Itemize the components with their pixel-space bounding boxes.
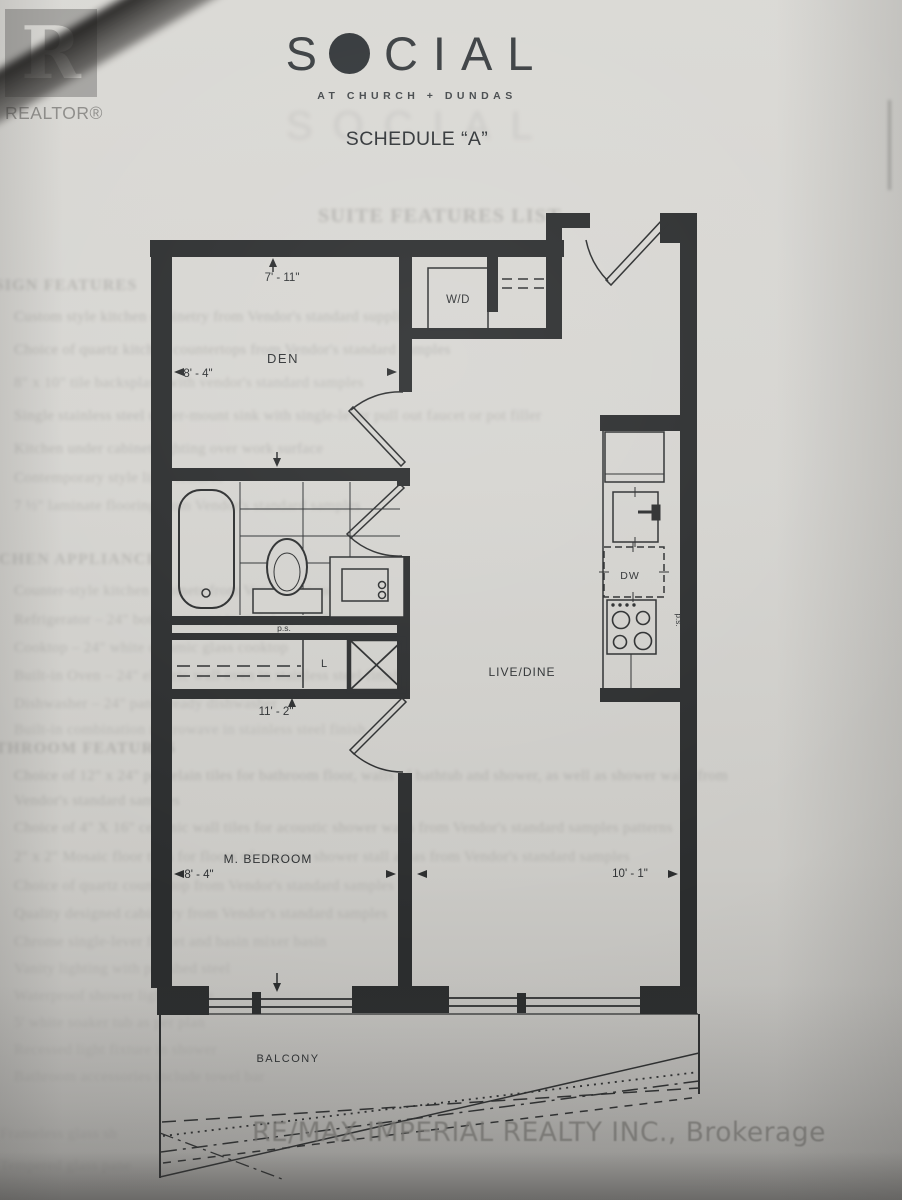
brand-tagline: AT CHURCH + DUNDAS xyxy=(286,90,548,102)
balcony-outline xyxy=(160,1014,699,1179)
dimension-hall-width: 11' - 2" xyxy=(259,706,294,718)
kitchen-sink xyxy=(613,487,660,547)
room-label-wd: W/D xyxy=(446,294,470,306)
schedule-title: SCHEDULE “A” xyxy=(286,128,548,151)
stove xyxy=(607,600,656,654)
linen-closet xyxy=(177,640,303,688)
label-ps-bath: p.s. xyxy=(277,623,291,633)
fridge xyxy=(605,432,664,482)
plan-labels: 7' - 11" DEN 8' - 4" W/D p.s. L 11' - 2"… xyxy=(183,272,683,1065)
bedroom-door xyxy=(350,698,406,772)
dimension-den-height: 7' - 11" xyxy=(265,272,300,284)
entry-door xyxy=(586,219,668,285)
social-o-dot-icon xyxy=(329,33,370,74)
label-dishwasher: DW xyxy=(620,570,640,582)
floorplan-drawing: 7' - 11" DEN 8' - 4" W/D p.s. L 11' - 2"… xyxy=(0,0,902,1200)
bathroom-door xyxy=(347,484,404,556)
vanity-sink xyxy=(330,557,404,617)
dimension-living-width: 10' - 1" xyxy=(612,868,648,880)
social-logo-letter-s: S xyxy=(286,26,317,81)
room-label-bedroom: M. BEDROOM xyxy=(224,852,313,866)
bathtub xyxy=(179,490,234,608)
shaft-x-box xyxy=(349,639,404,691)
dimension-bedroom-width: 8' - 4" xyxy=(184,869,213,881)
dimension-den-width: 8' - 4" xyxy=(183,368,212,380)
brokerage-watermark: RE/MAX IMPERIAL REALTY INC., Brokerage xyxy=(252,1117,826,1148)
social-logo-letters: CIAL xyxy=(384,26,549,81)
den-door xyxy=(349,392,405,466)
social-logo: S CIAL AT CHURCH + DUNDAS xyxy=(286,26,548,102)
label-ps-kitchen: p.s. xyxy=(674,614,683,627)
room-label-den: DEN xyxy=(267,351,299,366)
label-linen: L xyxy=(321,658,327,670)
room-label-live-dine: LIVE/DINE xyxy=(488,665,555,679)
toilet xyxy=(253,539,322,613)
room-label-balcony: BALCONY xyxy=(256,1053,319,1065)
floorplan-photo: SUITE FEATURES LISTDESIGN FEATURESCustom… xyxy=(0,0,902,1200)
